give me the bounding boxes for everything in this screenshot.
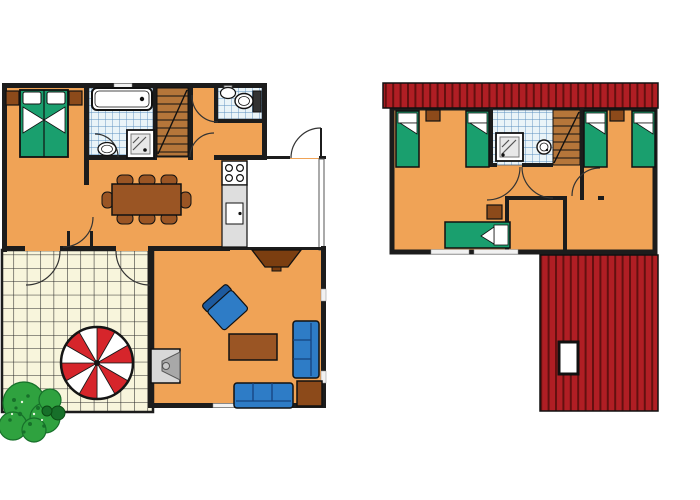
wall-stairs-right	[188, 83, 193, 160]
skylight-window	[559, 342, 578, 374]
terrace-door-opening-right	[116, 246, 150, 251]
pillow	[586, 113, 605, 123]
round-washbasin	[537, 140, 551, 154]
sofa-right	[293, 321, 319, 378]
coffee-table	[229, 334, 277, 360]
pillow	[468, 113, 487, 123]
wall-middle-horizontal	[505, 196, 567, 200]
wall-bedroom-divider	[84, 85, 89, 185]
toilet-tank	[253, 91, 261, 112]
kitchen	[222, 161, 247, 247]
wall-middle-vertical-right	[563, 196, 567, 252]
window-top-wall	[114, 84, 132, 88]
single-bed-2	[466, 111, 489, 167]
window-bottom-2	[474, 250, 518, 255]
single-bed-3	[584, 111, 607, 167]
pillow	[634, 113, 653, 123]
pillow-left	[23, 92, 41, 104]
bush	[22, 418, 46, 442]
toilet-bowl	[235, 94, 253, 109]
tv-stand	[272, 267, 281, 271]
wall-wc-bottom	[214, 119, 262, 123]
fireplace-flue	[163, 363, 170, 370]
door-jamb-right	[90, 231, 93, 247]
door-jamb-left	[67, 231, 70, 247]
floorplan-canvas	[0, 0, 700, 500]
floorplan-svg	[0, 0, 700, 500]
nightstand	[487, 205, 502, 219]
pillow	[398, 113, 417, 123]
pillow-right	[47, 92, 65, 104]
staircase-upper	[553, 110, 580, 165]
stove	[222, 161, 247, 185]
nightstand	[426, 110, 440, 121]
nightstand	[610, 110, 624, 121]
bush-small-dark	[42, 406, 52, 416]
wall-stub-right	[598, 196, 604, 200]
window-right-wall-1	[321, 289, 326, 301]
wall-porch-right-thin	[319, 159, 324, 250]
wall-left	[2, 83, 7, 252]
bath-washbasin	[98, 143, 116, 156]
burner-3	[226, 175, 233, 182]
washbasin-drain	[546, 149, 548, 151]
shower-drain	[143, 148, 147, 152]
single-bed-4	[632, 111, 655, 167]
sofa-bottom	[234, 383, 293, 408]
staircase-ground	[157, 88, 188, 156]
shower-drain	[501, 153, 504, 156]
wall-porch-top-left	[267, 156, 290, 159]
entrance-porch-floor	[247, 159, 319, 247]
garden-bushes	[0, 382, 65, 442]
pillow	[494, 225, 508, 245]
entrance-door-arc	[291, 128, 321, 158]
nightstand-left	[6, 91, 19, 105]
parasol-pole	[94, 360, 100, 366]
roof-ridge-strip	[383, 83, 658, 108]
wall-shower-bottom-b	[522, 163, 553, 167]
roof-slope	[540, 255, 658, 411]
bathtub-drain	[140, 97, 144, 101]
terrace-door-opening-left	[25, 246, 60, 251]
nightstand-right	[69, 91, 82, 105]
parasol	[61, 327, 133, 399]
fireplace	[151, 349, 180, 383]
wall-right-top-block	[262, 83, 267, 160]
wall-shower-bottom-a	[489, 163, 497, 167]
burner-1	[226, 165, 233, 172]
wc-washbasin	[221, 88, 236, 99]
upper-floor-plan	[383, 83, 658, 411]
ground-floor-plan	[0, 83, 326, 442]
window-bottom-1	[431, 250, 469, 255]
burner-2	[237, 165, 244, 172]
shower-tray	[131, 134, 150, 154]
kitchen-sink-tap	[238, 212, 241, 215]
roof-slope-surface	[540, 255, 658, 411]
dining-table	[112, 184, 181, 215]
single-bed-5	[445, 222, 510, 248]
wall-kitchen-top	[214, 155, 267, 160]
burner-4	[237, 175, 244, 182]
side-table	[297, 381, 322, 406]
bush-small-dark	[51, 406, 65, 420]
single-bed-1	[396, 111, 419, 167]
wall-wc-left	[214, 85, 218, 123]
